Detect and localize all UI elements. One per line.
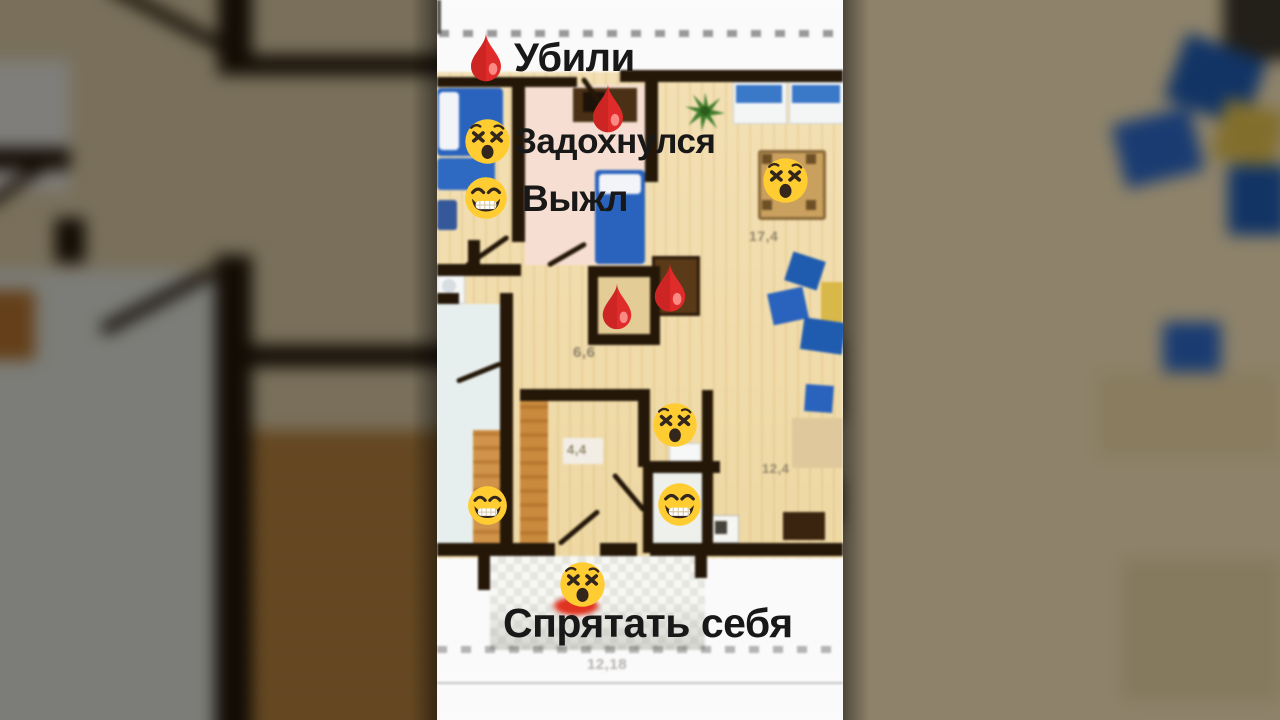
hall-wardrobe (520, 395, 548, 545)
bg-table (1123, 560, 1280, 700)
wall (702, 390, 713, 555)
porch-wall-stub (478, 556, 490, 590)
grin-face-emoji (467, 485, 508, 526)
bg-wood-texture (250, 430, 437, 720)
appliance-glyph (715, 521, 727, 534)
blood-drop-emoji (649, 261, 691, 315)
background-art (843, 0, 1280, 720)
blurred-background-left (0, 0, 437, 720)
wall (437, 293, 459, 304)
wall (643, 473, 653, 553)
background-art (0, 0, 437, 720)
dizzy-face-emoji (464, 118, 511, 165)
blood-drop-emoji (466, 31, 506, 85)
caption-hide-yourself: Спрятать себя (503, 598, 793, 648)
blood-drop-emoji (598, 281, 636, 333)
armchair (804, 384, 834, 413)
grin-face-emoji (464, 176, 508, 220)
caption-label: Спрятать себя (503, 603, 793, 644)
caption-label: Задохнулся (515, 124, 715, 159)
bed-pillow (439, 92, 459, 150)
wall (600, 543, 637, 556)
window-glass (736, 85, 782, 103)
porch-wall-stub (695, 556, 707, 578)
caption-label: Выжл (522, 180, 628, 217)
dimension-label: 12,18 (587, 656, 627, 673)
sink-bowl (442, 279, 456, 293)
video-frame: 17,4 6,6 4,4 12,4 12,18 Убили Задохнулся… (0, 0, 1280, 720)
side-desk (792, 418, 843, 468)
wall (215, 255, 252, 720)
wall (55, 218, 85, 263)
caption-survived: Выжл (464, 174, 628, 222)
wall (218, 0, 252, 75)
dining-table (821, 282, 843, 322)
blurred-background-right (843, 0, 1280, 720)
dizzy-face-emoji (652, 402, 698, 448)
wall (250, 55, 437, 75)
caption-suffocated: Задохнулся (464, 116, 715, 166)
wall (437, 543, 555, 556)
dimension-label: 4,4 (567, 442, 587, 457)
caption-label: Убили (514, 38, 635, 78)
dimension-label: 17,4 (749, 228, 778, 244)
bg-chair-blue (1228, 165, 1280, 235)
wall (252, 345, 437, 367)
wall (520, 389, 638, 401)
bg-cabinet-orange (0, 290, 35, 360)
window-glass (792, 85, 840, 103)
edge-sliver (437, 0, 441, 34)
edge-shadow (843, 0, 869, 720)
kitchen-counter (783, 512, 825, 540)
desk-chair (437, 200, 457, 230)
bg-chair-blue (1163, 322, 1221, 372)
dimension-label: 12,4 (762, 461, 789, 476)
bg-desk (1098, 372, 1280, 457)
wall (437, 264, 521, 276)
wall (638, 389, 650, 467)
edge-shadow (411, 0, 437, 720)
caption-killed: Убили (466, 30, 635, 86)
bottom-rule (437, 682, 843, 684)
dining-chair (800, 317, 843, 355)
dimension-label: 6,6 (573, 344, 595, 361)
wall (650, 543, 843, 556)
grin-face-emoji (657, 482, 702, 527)
dizzy-face-emoji (762, 157, 809, 204)
